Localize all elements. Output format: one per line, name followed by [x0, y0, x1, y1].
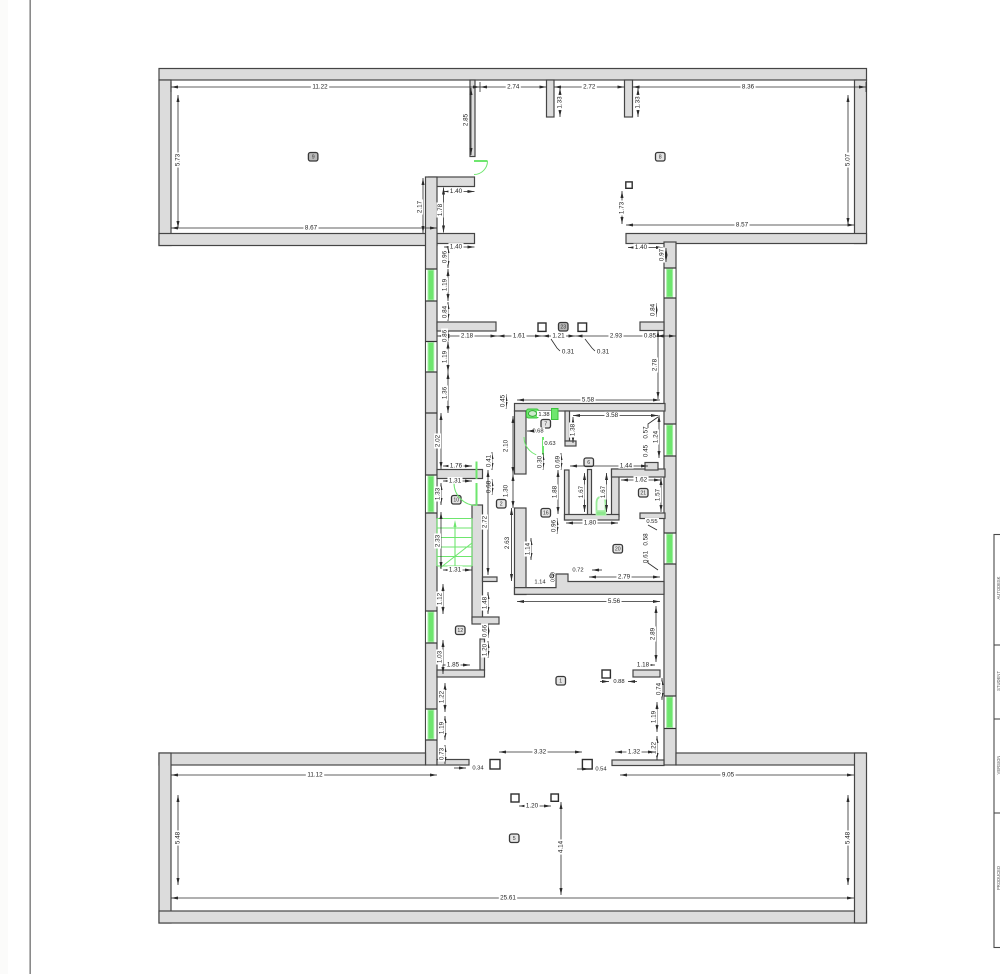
- svg-text:7: 7: [544, 421, 547, 427]
- svg-text:STUDENT: STUDENT: [996, 671, 1000, 691]
- svg-text:1.38: 1.38: [570, 423, 577, 436]
- svg-text:VERSION: VERSION: [996, 756, 1000, 775]
- svg-text:1.14: 1.14: [525, 542, 532, 555]
- svg-text:10: 10: [453, 497, 459, 503]
- svg-text:2.74: 2.74: [507, 84, 520, 91]
- svg-text:1.88: 1.88: [552, 485, 559, 498]
- svg-text:1.78: 1.78: [437, 203, 444, 216]
- svg-text:AUTODESK: AUTODESK: [996, 576, 1000, 599]
- svg-text:1.33: 1.33: [435, 487, 442, 500]
- svg-text:8.67: 8.67: [305, 225, 318, 232]
- svg-text:23: 23: [560, 324, 566, 330]
- svg-text:8: 8: [659, 154, 662, 160]
- svg-text:21: 21: [640, 490, 646, 496]
- svg-text:16: 16: [543, 510, 549, 516]
- svg-text:5.48: 5.48: [845, 831, 852, 844]
- svg-text:1.33: 1.33: [557, 96, 564, 109]
- svg-text:1.61: 1.61: [513, 333, 526, 340]
- svg-text:0.85: 0.85: [644, 333, 657, 340]
- svg-text:2.78: 2.78: [652, 358, 659, 371]
- svg-text:0.96: 0.96: [442, 250, 449, 263]
- svg-text:0.96: 0.96: [551, 519, 558, 532]
- svg-text:3.58: 3.58: [606, 412, 619, 419]
- svg-text:0.34: 0.34: [472, 766, 484, 772]
- svg-text:2.89: 2.89: [650, 627, 657, 640]
- svg-text:1.40: 1.40: [450, 188, 463, 195]
- svg-text:1.85: 1.85: [447, 662, 460, 669]
- svg-text:1.33: 1.33: [635, 96, 642, 109]
- svg-text:1.22: 1.22: [439, 690, 446, 703]
- svg-text:2.33: 2.33: [435, 534, 442, 547]
- svg-text:2.10: 2.10: [503, 439, 510, 452]
- svg-text:0.57: 0.57: [643, 426, 650, 439]
- svg-text:8.57: 8.57: [736, 222, 749, 229]
- svg-text:1.48: 1.48: [482, 596, 489, 609]
- svg-text:0.55: 0.55: [646, 519, 657, 525]
- svg-text:11.22: 11.22: [312, 84, 328, 91]
- svg-text:1.20: 1.20: [482, 643, 489, 656]
- svg-text:0.68: 0.68: [486, 480, 493, 493]
- svg-text:0.45: 0.45: [643, 444, 650, 457]
- svg-text:0.97: 0.97: [659, 248, 666, 261]
- svg-text:0.88: 0.88: [613, 679, 624, 685]
- svg-text:1.03: 1.03: [437, 650, 444, 663]
- svg-text:1.19: 1.19: [439, 721, 446, 734]
- svg-text:8.36: 8.36: [742, 84, 755, 91]
- svg-text:9.05: 9.05: [722, 772, 735, 779]
- svg-text:12: 12: [457, 628, 463, 634]
- svg-text:1.40: 1.40: [450, 244, 463, 251]
- svg-text:11.12: 11.12: [307, 772, 323, 779]
- svg-text:1.57: 1.57: [655, 488, 662, 501]
- svg-text:1.32: 1.32: [628, 749, 641, 756]
- svg-text:1.19: 1.19: [442, 278, 449, 291]
- svg-text:1.76: 1.76: [450, 463, 463, 470]
- svg-text:2.85: 2.85: [463, 113, 470, 126]
- svg-text:0.84: 0.84: [442, 305, 449, 318]
- svg-text:0.41: 0.41: [486, 454, 493, 467]
- svg-text:4.14: 4.14: [558, 840, 565, 853]
- svg-text:0.61: 0.61: [643, 550, 650, 563]
- svg-text:0.45: 0.45: [500, 394, 507, 407]
- svg-text:2.72: 2.72: [482, 515, 489, 528]
- svg-text:1.18: 1.18: [637, 662, 650, 669]
- svg-text:5.07: 5.07: [845, 153, 852, 166]
- svg-text:2.72: 2.72: [583, 84, 596, 91]
- svg-text:2.93: 2.93: [610, 333, 623, 340]
- svg-text:6: 6: [587, 460, 590, 466]
- svg-text:0.69: 0.69: [555, 455, 562, 468]
- svg-text:2.17: 2.17: [417, 200, 424, 213]
- svg-text:0.73: 0.73: [439, 747, 446, 760]
- svg-text:2: 2: [500, 501, 503, 507]
- svg-text:20: 20: [615, 546, 621, 552]
- svg-text:1.19: 1.19: [651, 710, 658, 723]
- svg-text:0.68: 0.68: [532, 429, 543, 435]
- svg-text:0.54: 0.54: [595, 767, 607, 773]
- svg-text:1.20: 1.20: [526, 803, 539, 810]
- svg-text:1.12: 1.12: [437, 592, 444, 605]
- svg-text:PRODUCED: PRODUCED: [996, 866, 1000, 890]
- svg-text:1.30: 1.30: [503, 484, 510, 497]
- svg-text:0.72: 0.72: [572, 568, 583, 574]
- svg-text:1.21: 1.21: [552, 333, 565, 340]
- svg-text:0.63: 0.63: [544, 441, 555, 447]
- svg-text:1.67: 1.67: [600, 485, 607, 498]
- svg-text:0.66: 0.66: [482, 624, 489, 637]
- svg-text:2.79: 2.79: [618, 574, 631, 581]
- svg-text:1.80: 1.80: [584, 520, 597, 527]
- svg-text:5.58: 5.58: [582, 397, 595, 404]
- svg-text:1.36: 1.36: [442, 386, 449, 399]
- svg-text:1: 1: [559, 678, 562, 684]
- svg-text:1.31: 1.31: [449, 478, 462, 485]
- svg-text:2.02: 2.02: [435, 434, 442, 447]
- svg-text:5.56: 5.56: [608, 598, 621, 605]
- svg-text:0.31: 0.31: [597, 349, 610, 356]
- svg-text:2.63: 2.63: [504, 536, 511, 549]
- svg-text:0.86: 0.86: [442, 329, 449, 342]
- svg-text:1.24: 1.24: [653, 430, 660, 443]
- svg-text:25.61: 25.61: [500, 895, 516, 902]
- svg-text:2.18: 2.18: [461, 333, 474, 340]
- svg-text:1.44: 1.44: [620, 463, 633, 470]
- svg-text:1.67: 1.67: [578, 485, 585, 498]
- svg-text:0.74: 0.74: [656, 682, 663, 695]
- svg-text:5.48: 5.48: [175, 831, 182, 844]
- svg-text:1.62: 1.62: [635, 477, 648, 484]
- svg-text:9: 9: [312, 154, 315, 160]
- svg-text:1.38: 1.38: [538, 412, 549, 418]
- svg-text:0.31: 0.31: [562, 349, 575, 356]
- svg-text:1.40: 1.40: [635, 244, 648, 251]
- svg-text:0.58: 0.58: [643, 533, 650, 546]
- svg-text:0.30: 0.30: [537, 455, 544, 468]
- svg-text:5.73: 5.73: [175, 153, 182, 166]
- svg-text:1.31: 1.31: [449, 567, 462, 574]
- svg-text:3.32: 3.32: [534, 749, 547, 756]
- svg-text:1.19: 1.19: [442, 350, 449, 363]
- svg-text:0.84: 0.84: [650, 303, 657, 316]
- svg-text:1.73: 1.73: [619, 201, 626, 214]
- svg-text:1.14: 1.14: [534, 580, 546, 586]
- svg-text:5: 5: [513, 836, 516, 842]
